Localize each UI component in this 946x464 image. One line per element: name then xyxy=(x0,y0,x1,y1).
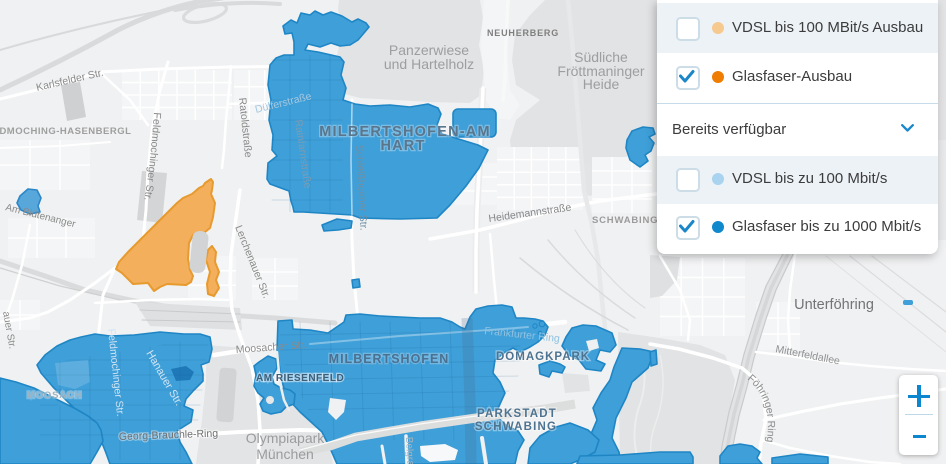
svg-text:Heide: Heide xyxy=(583,76,620,92)
svg-text:NEUHERBERG: NEUHERBERG xyxy=(487,28,559,38)
svg-text:DOMAGKPARK: DOMAGKPARK xyxy=(496,351,590,363)
svg-text:Belgradstraße: Belgradstraße xyxy=(403,437,417,464)
svg-text:Unterföhring: Unterföhring xyxy=(794,297,874,313)
svg-text:Olympiapark: Olympiapark xyxy=(246,430,326,446)
svg-text:AM RIESENFELD: AM RIESENFELD xyxy=(256,373,344,384)
svg-text:FELDMOCHING-HASENBERGL: FELDMOCHING-HASENBERGL xyxy=(0,126,131,137)
svg-text:München: München xyxy=(256,446,314,462)
svg-text:MOOSACH: MOOSACH xyxy=(27,390,82,401)
svg-text:SCHWABING: SCHWABING xyxy=(475,421,557,433)
svg-text:HART: HART xyxy=(380,138,425,154)
svg-text:PARKSTADT: PARKSTADT xyxy=(477,408,557,420)
svg-text:MILBERTSHOFEN: MILBERTSHOFEN xyxy=(329,352,450,366)
svg-text:und Hartelholz: und Hartelholz xyxy=(384,56,474,72)
